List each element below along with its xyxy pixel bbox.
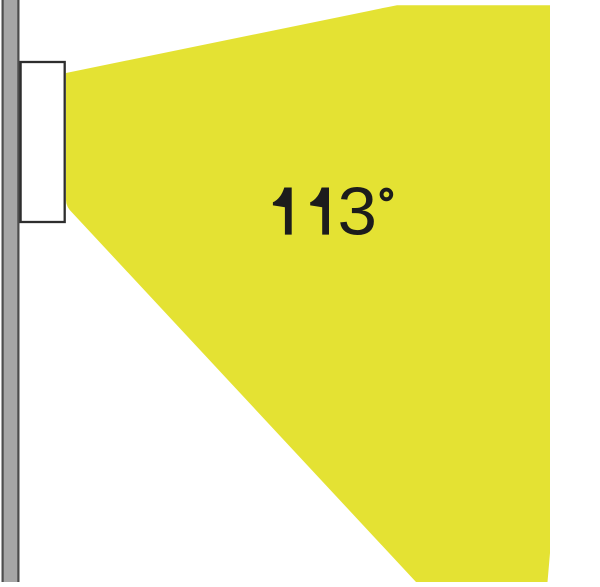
svg-text:3: 3 [338, 173, 377, 249]
